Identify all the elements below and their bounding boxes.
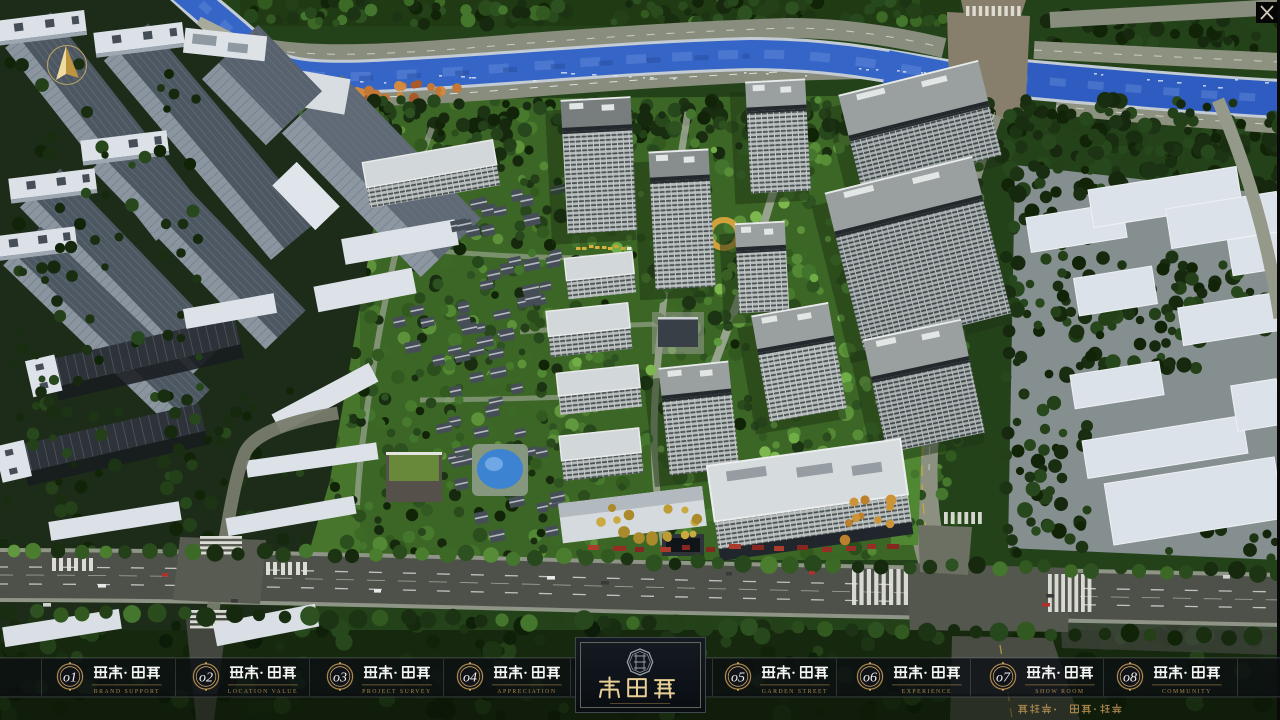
svg-text:o3: o3 (333, 671, 347, 686)
svg-text:o1: o1 (63, 671, 77, 686)
svg-text:o6: o6 (863, 671, 877, 686)
svg-text:APPRECIATION: APPRECIATION (497, 689, 556, 695)
svg-text:LOCATION VALUE: LOCATION VALUE (228, 689, 298, 695)
svg-text:o7: o7 (996, 671, 1011, 686)
svg-text:COMMUNITY: COMMUNITY (1162, 689, 1212, 695)
svg-text:BRAND SUPPORT: BRAND SUPPORT (94, 689, 160, 695)
svg-text:o2: o2 (199, 671, 213, 686)
svg-text:EXPERIENCE: EXPERIENCE (902, 689, 952, 695)
svg-text:SHOW ROOM: SHOW ROOM (1035, 689, 1084, 695)
svg-text:o5: o5 (731, 671, 745, 686)
svg-text:PROJECT SURVEY: PROJECT SURVEY (362, 689, 432, 695)
svg-text:o8: o8 (1123, 671, 1137, 686)
svg-text:o4: o4 (463, 671, 477, 686)
svg-text:GARDEN STREET: GARDEN STREET (762, 689, 828, 695)
